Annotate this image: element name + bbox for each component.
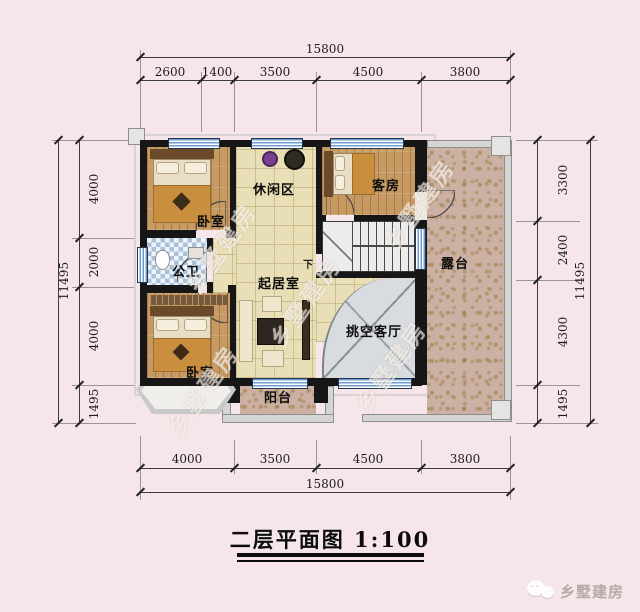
pillow xyxy=(335,156,345,171)
pillow xyxy=(156,162,179,174)
round-table xyxy=(262,151,278,167)
title-underline-thick xyxy=(237,553,424,557)
dim-right-seg: 1495 xyxy=(556,381,570,427)
dim-bottom-seg: 4000 xyxy=(157,452,217,466)
floor-plan-page: 15800 2600 1400 3500 4500 3800 4000 3500… xyxy=(0,0,640,612)
pillow xyxy=(335,175,345,190)
page-title: 二层平面图 1:100 xyxy=(200,524,460,554)
dim-top-seg: 1400 xyxy=(195,65,239,79)
label-terrace: 露台 xyxy=(441,253,469,272)
extension-line xyxy=(516,385,580,386)
brand-name: 乡墅建房 xyxy=(560,581,624,602)
label-guest: 客房 xyxy=(372,175,400,194)
terrace-post-topright xyxy=(491,136,511,156)
extension-line xyxy=(510,50,511,132)
basket-chair xyxy=(284,149,305,170)
bed-headboard xyxy=(150,149,214,159)
bed-headboard xyxy=(324,151,333,197)
extension-line xyxy=(72,385,136,386)
wechat-icon-eye xyxy=(536,585,538,587)
dim-left-total: 11495 xyxy=(57,251,71,311)
dim-bottom-seg: 3800 xyxy=(435,452,495,466)
wall-leisure-guest-divider xyxy=(316,147,322,221)
dim-top-total: 15800 xyxy=(295,42,355,56)
extension-line xyxy=(516,140,598,141)
pillow xyxy=(184,319,207,331)
dim-top-seg: 3800 xyxy=(435,65,495,79)
wechat-icon-eye xyxy=(531,585,533,587)
dim-right-total: 11495 xyxy=(573,251,587,311)
dim-right-seg: 4300 xyxy=(556,309,570,355)
pillow xyxy=(156,319,179,331)
balcony-railing-bottom xyxy=(222,414,334,423)
balcony-wall-stub xyxy=(314,386,328,403)
label-leisure: 休闲区 xyxy=(253,179,295,198)
dim-bottom-total: 15800 xyxy=(295,477,355,491)
dim-line-left-segments xyxy=(79,140,80,423)
extension-line xyxy=(516,221,580,222)
terrace-railing-right xyxy=(504,140,512,422)
dim-right-seg: 2400 xyxy=(556,227,570,273)
extension-line xyxy=(140,50,141,132)
dim-bottom-seg: 3500 xyxy=(245,452,305,466)
wardrobe xyxy=(150,295,228,305)
dim-line-top-total xyxy=(140,57,510,58)
bed-headboard xyxy=(150,306,214,316)
dim-left-seg: 4000 xyxy=(87,166,101,212)
window-leisure xyxy=(251,138,303,149)
terrace-railing-bottom xyxy=(362,414,512,422)
dim-top-seg: 2600 xyxy=(140,65,200,79)
dim-line-bottom-total xyxy=(140,492,510,493)
dim-right-seg: 3300 xyxy=(556,157,570,203)
dim-line-bottom-segments xyxy=(140,468,510,469)
wall-bedroom-top-bottom xyxy=(147,230,196,238)
extension-line xyxy=(516,280,580,281)
pillow xyxy=(184,162,207,174)
dim-left-seg: 2000 xyxy=(87,239,101,285)
extension-line xyxy=(72,287,136,288)
extension-line xyxy=(72,238,136,239)
toilet xyxy=(155,250,170,270)
window-bath xyxy=(137,247,148,283)
dim-left-seg: 1495 xyxy=(87,381,101,427)
label-balcony: 阳台 xyxy=(264,387,292,406)
dim-top-seg: 4500 xyxy=(338,65,398,79)
armchair xyxy=(262,350,284,367)
wechat-icon-small-bubble xyxy=(541,586,554,598)
extension-line xyxy=(52,140,136,141)
dim-left-seg: 4000 xyxy=(87,313,101,359)
wall-bedroom-bottom-top xyxy=(228,285,236,293)
window-guest xyxy=(330,138,404,149)
dim-line-top-segments xyxy=(140,80,510,81)
title-underline-thin xyxy=(237,560,424,562)
dim-top-seg: 3500 xyxy=(245,65,305,79)
window-bedroom-top xyxy=(168,138,220,149)
dim-bottom-seg: 4500 xyxy=(338,452,398,466)
dim-line-right-total xyxy=(590,140,591,423)
terrace-post-bottomright xyxy=(491,400,511,420)
